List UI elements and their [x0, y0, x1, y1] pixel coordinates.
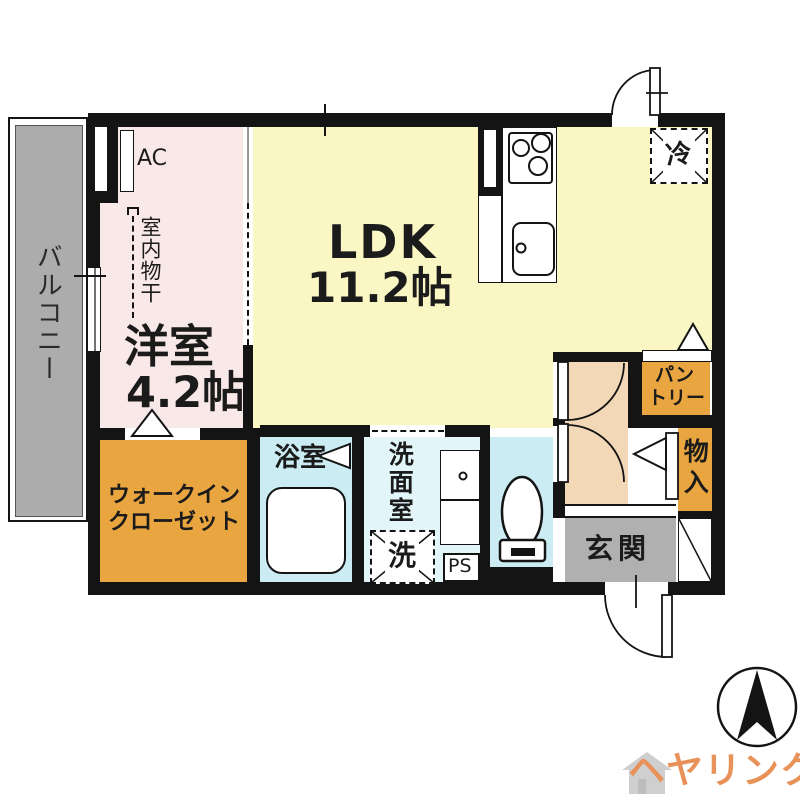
- washroom-opening-dash: [372, 430, 444, 432]
- wic-label-line1: ウォークイン: [108, 484, 239, 507]
- drying-bracket: [127, 207, 139, 215]
- wall-top-left: [88, 113, 612, 127]
- sliding-partition-line-top: [247, 127, 249, 203]
- vanity-upper: [440, 450, 480, 500]
- ldk-room-lower: [253, 352, 553, 428]
- wall-hall-c: [553, 482, 565, 518]
- wall-storage-bottom: [678, 511, 712, 518]
- wall-hall-top: [565, 352, 628, 362]
- bathroom-label: 浴室: [274, 445, 326, 472]
- storage-door-zone: [628, 428, 678, 508]
- ac-unit: [120, 130, 134, 192]
- wall-pantry-left: [628, 352, 642, 423]
- pantry-label-line1: パン: [655, 366, 694, 386]
- hallway-floor: [565, 362, 628, 508]
- washer-label: 洗: [388, 541, 416, 570]
- kitchen-cabinet: [478, 195, 502, 283]
- wall-bedroom-bottom-b: [200, 428, 247, 440]
- refrigerator-label: 冷: [664, 140, 694, 171]
- wic-label-line2: クローゼット: [108, 511, 239, 534]
- ldk-name: LDK: [328, 218, 437, 266]
- wall-wic-bath: [247, 428, 260, 595]
- kitchen-partition-slot: [484, 130, 496, 187]
- wall-bottom-right: [668, 582, 725, 595]
- sink: [512, 222, 555, 276]
- wall-hall-b: [553, 418, 565, 426]
- wall-bottom-left: [88, 582, 605, 595]
- wall-left-b: [88, 352, 100, 595]
- toilet-room: [490, 437, 553, 567]
- logo-text: ヘヤリンク: [628, 752, 800, 791]
- kitchen-door-opening: [612, 113, 658, 127]
- indoor-drying-label: 室内物干: [139, 216, 161, 304]
- wall-pantry-storage: [628, 415, 712, 428]
- bedroom-name: 洋室: [124, 323, 214, 370]
- balcony-label: バルコニー: [33, 243, 60, 383]
- entrance-step: [565, 504, 676, 518]
- sliding-partition-line-dashed: [247, 203, 249, 345]
- shoe-cabinet: [678, 518, 712, 582]
- wall-bath-washroom: [352, 437, 364, 595]
- wall-bath-top: [260, 425, 370, 437]
- pipe-space-label: PS: [448, 557, 472, 577]
- wall-left-a: [88, 203, 100, 267]
- compass-north: [718, 668, 796, 746]
- washroom-label: 洗面室: [386, 441, 412, 525]
- floorplan-canvas: バルコニー AC 室内物干 洋室 4.2帖 LDK 11.2帖 冷 パン トリー…: [0, 0, 800, 800]
- storage-label: 物入: [681, 438, 707, 500]
- wall-bedroom-bottom-a: [100, 428, 125, 440]
- drying-pole-line: [132, 216, 134, 318]
- wall-hall-a: [553, 352, 565, 362]
- balcony-window: [87, 267, 101, 352]
- entrance-label: 玄関: [585, 534, 651, 563]
- wall-toilet-bottom: [490, 567, 553, 582]
- kitchen-door: [612, 68, 668, 115]
- pantry-label-line2: トリー: [648, 389, 705, 409]
- wall-right: [712, 113, 725, 595]
- bedroom-size: 4.2帖: [126, 371, 245, 416]
- entrance-door-opening: [605, 582, 668, 595]
- wall-washroom-toilet: [480, 428, 490, 595]
- bedroom-window-slot: [95, 127, 107, 191]
- wic-door-opening: [125, 428, 200, 440]
- stove: [508, 132, 553, 184]
- vanity-lower: [440, 500, 480, 545]
- ldk-size: 11.2帖: [307, 266, 453, 310]
- bathtub: [266, 487, 346, 574]
- ac-label: AC: [137, 147, 167, 170]
- pantry-opening: [642, 350, 712, 362]
